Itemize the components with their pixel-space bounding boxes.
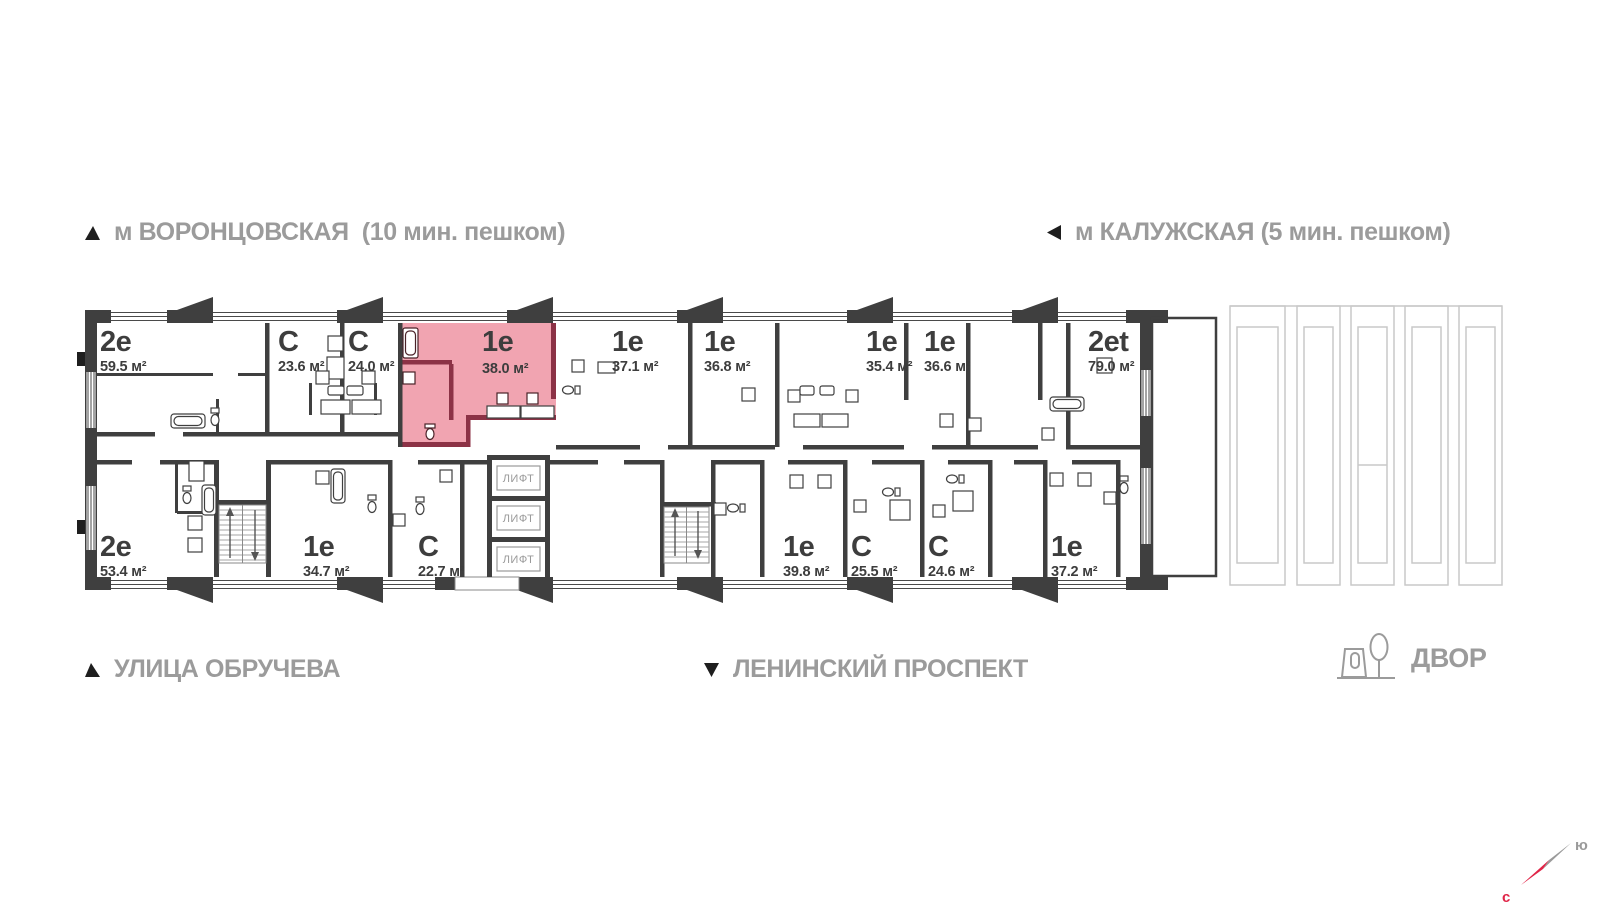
unit-type-label: 2е: [100, 531, 132, 563]
unit-area-label: 36.8 м²: [704, 359, 751, 375]
unit-top-s-24[interactable]: С 24.0 м²: [348, 326, 395, 375]
unit-top-1e-38-highlighted[interactable]: 1е 38.0 м²: [398, 323, 556, 447]
unit-top-2et-79[interactable]: 2et 79.0 м²: [1088, 326, 1135, 375]
unit-type-label: 1е: [866, 326, 898, 358]
exterior-wall-top: [85, 297, 1152, 323]
exterior-wall-right: [1140, 310, 1168, 590]
unit-area-label: 39.8 м²: [783, 564, 830, 580]
unit-bottom-s-22[interactable]: С 22.7 м²: [418, 531, 465, 580]
exterior-wall-bottom: [85, 577, 1152, 603]
unit-top-1e-36-8[interactable]: 1е 36.8 м²: [704, 326, 751, 375]
unit-area-label: 38.0 м²: [482, 361, 529, 377]
elevator-label: ЛИФТ: [503, 513, 535, 525]
unit-area-label: 34.7 м²: [303, 564, 350, 580]
unit-area-label: 25.5 м²: [851, 564, 898, 580]
exit-door: [455, 577, 519, 590]
unit-type-label: 1е: [612, 326, 644, 358]
unit-bottom-1e-39[interactable]: 1е 39.8 м²: [783, 531, 830, 580]
unit-bottom-s-25[interactable]: С 25.5 м²: [851, 531, 898, 580]
balcony-outline: [1152, 318, 1216, 576]
unit-bottom-1e-37-2[interactable]: 1е 37.2 м²: [1051, 531, 1098, 580]
staircase-left: [219, 505, 266, 563]
floor-plan-page: м ВОРОНЦОВСКАЯ (10 мин. пешком) м КАЛУЖС…: [0, 0, 1600, 920]
unit-type-label: 1е: [303, 531, 335, 563]
unit-type-label: С: [348, 326, 369, 358]
unit-type-label: С: [851, 531, 872, 563]
highlight-kitchen: [487, 406, 554, 418]
unit-top-1e-36-6[interactable]: 1е 36.6 м²: [924, 326, 971, 375]
adjacent-section-outline: [1230, 306, 1502, 585]
unit-type-label: С: [278, 326, 299, 358]
unit-type-label: 1е: [1051, 531, 1083, 563]
elevator-label: ЛИФТ: [503, 554, 535, 566]
floor-plan: 1е 38.0 м²: [0, 0, 1600, 920]
unit-top-s-23[interactable]: С 23.6 м²: [278, 326, 325, 375]
staircase-right: [664, 507, 709, 563]
unit-bottom-s-24[interactable]: С 24.6 м²: [928, 531, 975, 580]
elevator-bank: ЛИФТ ЛИФТ ЛИФТ: [497, 466, 540, 571]
unit-bottom-1e-34[interactable]: 1е 34.7 м²: [303, 531, 350, 580]
exterior-wall-left: [77, 310, 97, 590]
unit-area-label: 53.4 м²: [100, 564, 147, 580]
unit-area-label: 23.6 м²: [278, 359, 325, 375]
unit-type-label: 1е: [482, 326, 514, 358]
unit-area-label: 36.6 м²: [924, 359, 971, 375]
unit-type-label: С: [928, 531, 949, 563]
unit-type-label: 1е: [783, 531, 815, 563]
unit-area-label: 22.7 м²: [418, 564, 465, 580]
unit-area-label: 37.2 м²: [1051, 564, 1098, 580]
unit-type-label: 1е: [704, 326, 736, 358]
unit-type-label: 1е: [924, 326, 956, 358]
unit-type-label: 2е: [100, 326, 132, 358]
unit-area-label: 24.0 м²: [348, 359, 395, 375]
unit-type-label: 2et: [1088, 326, 1129, 358]
unit-area-label: 24.6 м²: [928, 564, 975, 580]
unit-top-1e-37[interactable]: 1е 37.1 м²: [612, 326, 659, 375]
elevator-label: ЛИФТ: [503, 473, 535, 485]
unit-area-label: 35.4 м²: [866, 359, 913, 375]
unit-area-label: 37.1 м²: [612, 359, 659, 375]
unit-type-label: С: [418, 531, 439, 563]
unit-bottom-2e-53[interactable]: 2е 53.4 м²: [100, 531, 147, 580]
unit-top-2e-59[interactable]: 2е 59.5 м²: [100, 326, 147, 375]
unit-area-label: 79.0 м²: [1088, 359, 1135, 375]
unit-area-label: 59.5 м²: [100, 359, 147, 375]
